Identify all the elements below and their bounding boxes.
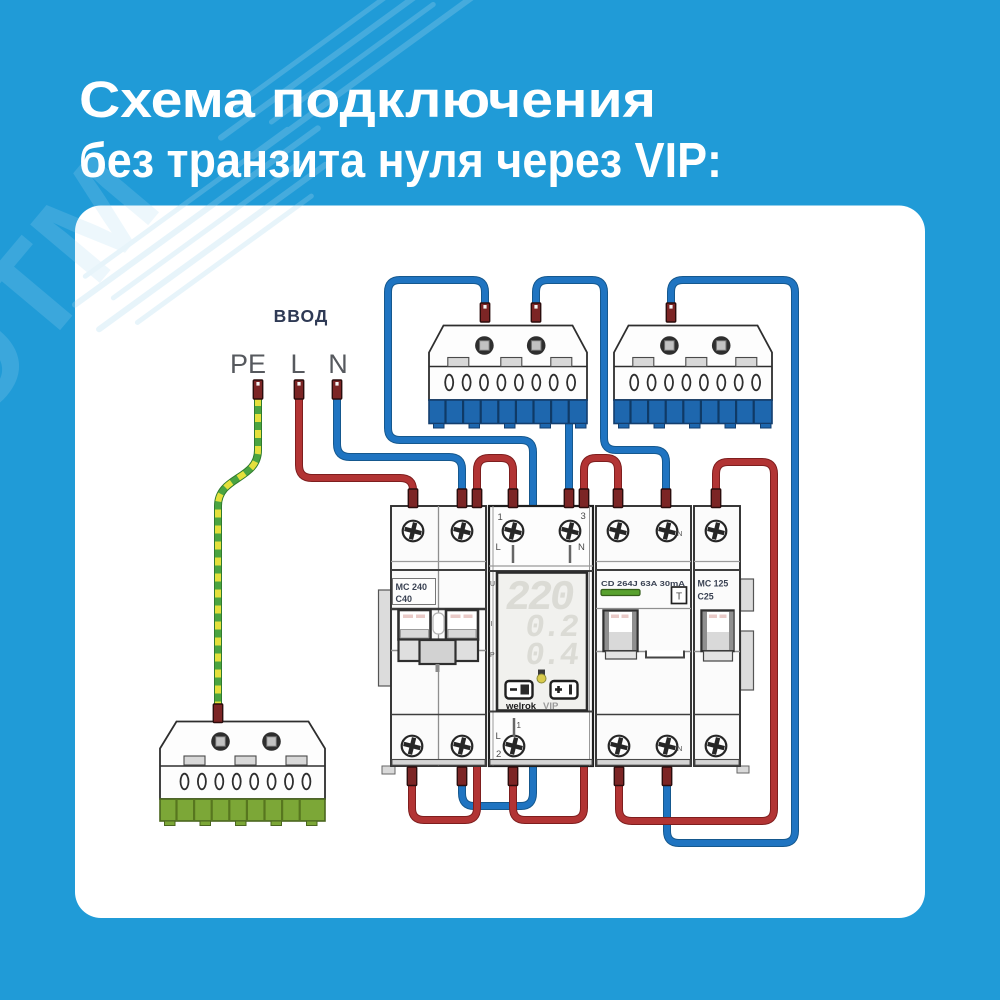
svg-text:MC 240: MC 240 — [396, 582, 428, 592]
svg-text:N: N — [677, 529, 682, 538]
svg-text:3: 3 — [581, 511, 586, 522]
svg-text:Схема подключения: Схема подключения — [79, 71, 656, 128]
svg-text:PE: PE — [230, 349, 266, 379]
svg-text:N: N — [677, 744, 682, 753]
svg-text:0.4: 0.4 — [523, 637, 581, 674]
svg-text:P: P — [490, 652, 495, 659]
svg-text:1: 1 — [517, 721, 522, 730]
svg-text:L: L — [496, 542, 501, 553]
svg-text:welrok: welrok — [505, 701, 537, 712]
svg-text:ВВОД: ВВОД — [274, 306, 329, 326]
svg-text:L: L — [496, 731, 501, 742]
svg-text:N: N — [328, 349, 348, 379]
svg-text:I: I — [491, 621, 493, 628]
svg-text:без транзита нуля через VIP:: без транзита нуля через VIP: — [79, 134, 722, 188]
svg-text:U: U — [490, 581, 495, 588]
svg-text:T: T — [676, 592, 682, 603]
svg-text:L: L — [290, 349, 305, 379]
svg-text:2: 2 — [496, 749, 501, 760]
svg-text:C25: C25 — [698, 592, 714, 602]
svg-text:C40: C40 — [396, 594, 413, 604]
svg-text:N: N — [578, 542, 585, 553]
svg-text:VIP: VIP — [543, 701, 559, 712]
svg-text:1: 1 — [498, 512, 503, 523]
svg-text:MC 125: MC 125 — [698, 579, 729, 589]
